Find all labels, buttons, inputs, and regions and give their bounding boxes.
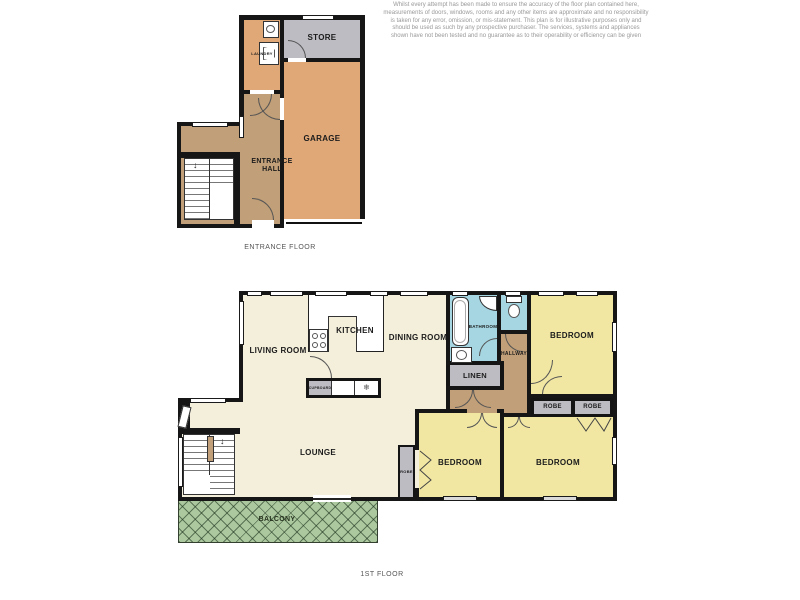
wall xyxy=(415,409,467,413)
window xyxy=(247,291,262,296)
room-label-robe-left: ROBE xyxy=(543,404,562,411)
wall xyxy=(415,413,419,450)
robe-right-bifold-door xyxy=(576,417,612,433)
room-robe-right: ROBE xyxy=(572,398,613,417)
disclaimer-text: Whilst every attempt has been made to en… xyxy=(383,2,649,41)
window xyxy=(315,291,347,296)
wall xyxy=(500,417,504,497)
window xyxy=(302,15,334,20)
stair-wall-right xyxy=(234,152,240,224)
first-floor-caption: 1ST FLOOR xyxy=(332,571,432,578)
wall xyxy=(446,295,450,365)
room-robe-left: ROBE xyxy=(531,398,574,417)
room-label-store: STORE xyxy=(284,33,360,43)
garage-door-line xyxy=(286,222,362,224)
room-label-bedroom-middle: BEDROOM xyxy=(420,458,500,468)
stair-handrail xyxy=(207,436,214,462)
room-label-lounge: LOUNGE xyxy=(283,448,353,458)
room-label-robe-right: ROBE xyxy=(583,404,602,411)
room-label-cupboard: CUPBOARD xyxy=(309,386,332,390)
kitchen-island: CUPBOARD ❄ xyxy=(306,378,381,398)
room-linen: LINEN xyxy=(446,361,504,390)
window xyxy=(538,291,564,296)
window xyxy=(452,291,468,296)
window xyxy=(370,291,388,296)
room-label-living-room: LIVING ROOM xyxy=(238,346,318,356)
robe-small-bifold-door xyxy=(419,450,433,490)
floor-plan-page: Whilst every attempt has been made to en… xyxy=(0,0,800,600)
wall xyxy=(527,384,531,413)
window xyxy=(612,437,617,465)
window xyxy=(400,291,428,296)
front-door-opening xyxy=(252,220,274,228)
room-label-laundry: LAUNDRY xyxy=(244,52,280,57)
wall xyxy=(497,356,501,365)
window xyxy=(239,301,244,345)
wall xyxy=(562,394,613,398)
entrance-stairs: ↓ xyxy=(184,158,234,220)
wall xyxy=(497,409,504,413)
room-label-bedroom-right: BEDROOM xyxy=(518,458,598,468)
room-label-robe-small: ROBE xyxy=(400,470,413,475)
toilet-bowl xyxy=(508,304,520,318)
room-label-bedroom-top: BEDROOM xyxy=(532,331,612,341)
room-label-entrance-hall: ENTRANCE HALL xyxy=(246,158,298,175)
window xyxy=(239,116,244,138)
window xyxy=(576,291,598,296)
balcony-door-line xyxy=(313,498,351,500)
window xyxy=(270,291,303,296)
window xyxy=(543,496,577,501)
room-label-garage: GARAGE xyxy=(284,134,360,144)
room-robe-small: ROBE xyxy=(398,445,415,497)
bathroom-sink-basin xyxy=(456,350,467,360)
window xyxy=(192,122,228,127)
entrance-floor-caption: ENTRANCE FLOOR xyxy=(230,244,330,251)
hall-garage-door-opening xyxy=(280,98,284,120)
freezer-icon: ❄ xyxy=(355,381,378,395)
window xyxy=(443,496,477,501)
stair-direction-arrow: ↓ xyxy=(193,161,198,170)
stair-direction-arrow: ↓ xyxy=(220,437,225,446)
wall xyxy=(531,394,540,398)
room-label-balcony: BALCONY xyxy=(240,516,314,524)
window xyxy=(612,322,617,352)
laundry-sink-basin xyxy=(266,25,275,33)
window xyxy=(190,398,226,403)
wall xyxy=(497,295,501,344)
store-door-opening xyxy=(288,58,306,62)
toilet-cistern xyxy=(506,296,522,303)
room-label-bathroom: BATHROOM xyxy=(465,324,501,329)
room-label-linen: LINEN xyxy=(463,371,487,380)
room-label-hallway: HALLWAY xyxy=(494,351,534,357)
room-label-dining-room: DINING ROOM xyxy=(378,333,458,343)
wall xyxy=(446,386,450,398)
